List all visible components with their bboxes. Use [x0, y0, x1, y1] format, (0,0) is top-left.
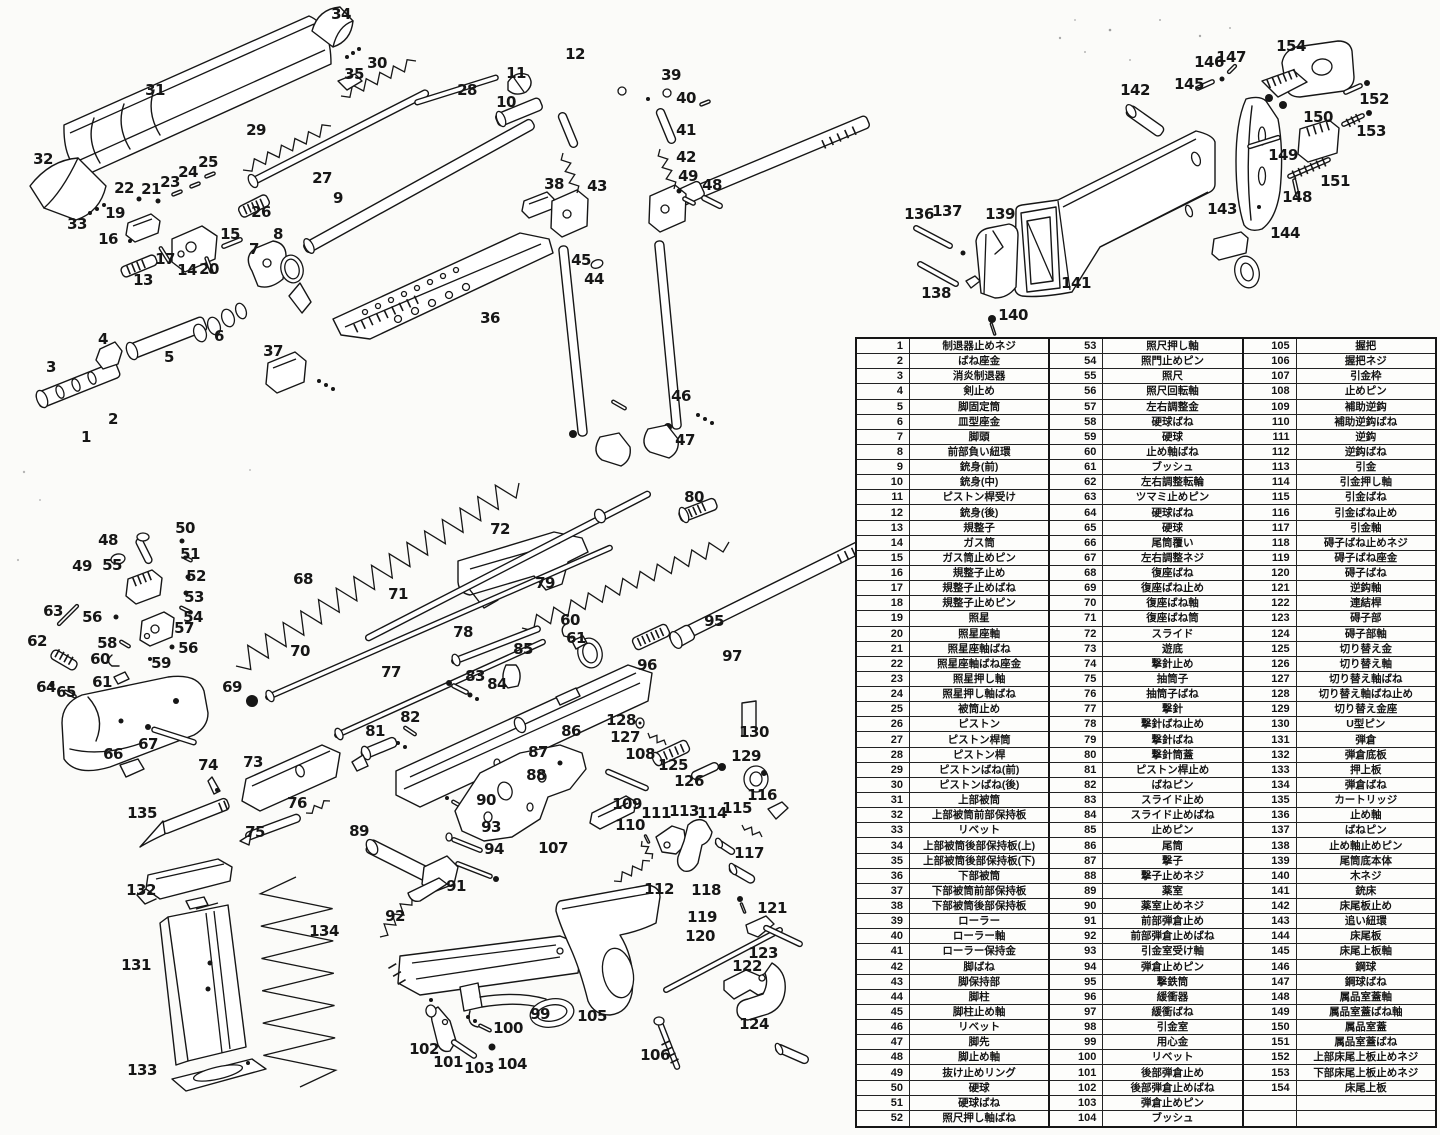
table-row: 149属品室蓋ばね軸	[1244, 1005, 1435, 1020]
part-number-cell: 6	[857, 415, 910, 429]
table-row: 45脚柱止め軸	[857, 1005, 1048, 1020]
part-name-cell: 後部弾倉止め	[1103, 1067, 1241, 1079]
table-row: 88撃子止めネジ	[1050, 869, 1241, 884]
part-name-cell: ピストンばね(前)	[910, 764, 1048, 776]
part-number-cell: 90	[1050, 899, 1103, 913]
part-number-cell: 9	[857, 460, 910, 474]
part-name-cell: 止め軸	[1297, 809, 1435, 821]
part-name-cell: 碍子ばね止めネジ	[1297, 537, 1435, 549]
part-number-label: 127	[610, 728, 640, 746]
part-number-cell: 117	[1244, 521, 1297, 535]
part-number-label: 72	[490, 520, 510, 538]
table-row: 126切り替え軸	[1244, 657, 1435, 672]
part-number-label: 106	[640, 1046, 670, 1064]
part-name-cell: ばね座金	[910, 355, 1048, 367]
table-row: 138止め軸止めピン	[1244, 838, 1435, 853]
table-row: 35上部被筒後部保持板(下)	[857, 854, 1048, 869]
table-row: 102後部弾倉止めばね	[1050, 1081, 1241, 1096]
part-number-cell: 99	[1050, 1035, 1103, 1049]
part-number-label: 19	[105, 204, 125, 222]
part-name-cell: 規整子止めばね	[910, 582, 1048, 594]
part-number-label: 108	[625, 745, 655, 763]
table-row: 9銃身(前)	[857, 460, 1048, 475]
table-row: 80撃針筒蓋	[1050, 748, 1241, 763]
part-number-label: 46	[671, 387, 691, 405]
part-name-cell: 上部被筒後部保持板(上)	[910, 840, 1048, 852]
part-number-label: 10	[496, 93, 516, 111]
part-number-label: 132	[126, 881, 156, 899]
part-number-cell: 98	[1050, 1020, 1103, 1034]
part-name-cell: 銃身(前)	[910, 461, 1048, 473]
part-number-label: 147	[1216, 48, 1246, 66]
table-row: 62左右調整転輪	[1050, 475, 1241, 490]
parts-table: 1制退器止めネジ2ばね座金3消炎制退器4剣止め5脚固定筒6皿型座金7脚頭8前部負…	[855, 337, 1437, 1128]
part-number-label: 133	[127, 1061, 157, 1079]
part-number-label: 20	[199, 260, 219, 278]
part-number-label: 23	[160, 173, 180, 191]
part-number-label: 152	[1359, 90, 1389, 108]
part-number-cell: 83	[1050, 793, 1103, 807]
part-name-cell: 弾倉底板	[1297, 749, 1435, 761]
part-number-cell: 16	[857, 566, 910, 580]
part-number-cell: 49	[857, 1065, 910, 1079]
part-number-label: 154	[1276, 37, 1306, 55]
part-number-cell: 109	[1244, 400, 1297, 414]
table-row: 85止めピン	[1050, 823, 1241, 838]
part-name-cell: 皿型座金	[910, 416, 1048, 428]
table-row: 5脚固定筒	[857, 400, 1048, 415]
part-number-cell: 56	[1050, 384, 1103, 398]
table-row: 74撃針止め	[1050, 657, 1241, 672]
part-name-cell: 弾倉ばね	[1297, 779, 1435, 791]
table-row: 33リベット	[857, 823, 1048, 838]
part-number-label: 36	[480, 309, 500, 327]
part-number-label: 142	[1120, 81, 1150, 99]
part-number-label: 59	[151, 654, 171, 672]
part-name-cell: 復座ばね	[1103, 567, 1241, 579]
table-row: 127切り替え軸ばね	[1244, 672, 1435, 687]
part-number-label: 130	[739, 723, 769, 741]
part-number-label: 9	[333, 189, 343, 207]
table-row: 91前部弾倉止め	[1050, 914, 1241, 929]
part-name-cell: 薬室	[1103, 885, 1241, 897]
part-number-cell: 91	[1050, 914, 1103, 928]
part-name-cell: 緩衝ばね	[1103, 1006, 1241, 1018]
part-number-cell: 119	[1244, 551, 1297, 565]
part-number-cell: 27	[857, 732, 910, 746]
part-number-cell: 141	[1244, 884, 1297, 898]
part-number-label: 14	[177, 261, 197, 279]
part-name-cell: 属品室蓋ばね軸	[1297, 1006, 1435, 1018]
part-name-cell: 握把	[1297, 340, 1435, 352]
part-name-cell: 抜け止めリング	[910, 1067, 1048, 1079]
table-row: 38下部被筒後部保持板	[857, 899, 1048, 914]
table-row: 141銃床	[1244, 884, 1435, 899]
part-number-label: 48	[702, 176, 722, 194]
part-number-label: 45	[571, 251, 591, 269]
table-row: 15ガス筒止めピン	[857, 551, 1048, 566]
part-number-label: 49	[72, 557, 92, 575]
table-row: 150属品室蓋	[1244, 1020, 1435, 1035]
part-number-cell: 122	[1244, 596, 1297, 610]
part-name-cell: 碍子ばね	[1297, 567, 1435, 579]
part-name-cell: 引金押し軸	[1297, 476, 1435, 488]
part-name-cell: 照尺押し軸ばね	[910, 1112, 1048, 1124]
part-number-cell: 121	[1244, 581, 1297, 595]
part-name-cell: 切り替え金	[1297, 643, 1435, 655]
part-name-cell: 止め軸ばね	[1103, 446, 1241, 458]
part-number-cell: 154	[1244, 1081, 1297, 1095]
part-number-label: 30	[367, 54, 387, 72]
table-row: 39ローラー	[857, 914, 1048, 929]
part-number-cell: 143	[1244, 914, 1297, 928]
table-row: 30ピストンばね(後)	[857, 778, 1048, 793]
part-number-label: 129	[731, 747, 761, 765]
part-name-cell: 銃身(中)	[910, 476, 1048, 488]
part-name-cell: 硬球	[1103, 522, 1241, 534]
part-number-cell: 111	[1244, 430, 1297, 444]
table-row: 92前部弾倉止めばね	[1050, 929, 1241, 944]
part-number-label: 33	[67, 215, 87, 233]
part-number-cell: 138	[1244, 838, 1297, 852]
table-row: 152上部床尾上板止めネジ	[1244, 1050, 1435, 1065]
part-number-cell: 31	[857, 793, 910, 807]
part-number-cell: 10	[857, 475, 910, 489]
part-number-cell: 92	[1050, 929, 1103, 943]
table-row: 121逆鈎軸	[1244, 581, 1435, 596]
part-name-cell: 引金	[1297, 461, 1435, 473]
part-number-label: 81	[365, 722, 385, 740]
part-number-label: 68	[293, 570, 313, 588]
table-row: 47脚先	[857, 1035, 1048, 1050]
part-name-cell: 属品室蓋軸	[1297, 991, 1435, 1003]
part-name-cell: 弾倉止めピン	[1103, 961, 1241, 973]
part-number-label: 7	[249, 240, 259, 258]
part-name-cell: 尾筒	[1103, 840, 1241, 852]
part-number-cell: 137	[1244, 823, 1297, 837]
part-name-cell: 弾倉止めピン	[1103, 1097, 1241, 1109]
part-name-cell: 属品室蓋	[1297, 1021, 1435, 1033]
part-number-cell: 127	[1244, 672, 1297, 686]
table-row: 124碍子部軸	[1244, 627, 1435, 642]
part-name-cell: 被筒止め	[910, 703, 1048, 715]
part-number-label: 76	[287, 794, 307, 812]
table-row: 142床尾板止め	[1244, 899, 1435, 914]
part-number-cell: 32	[857, 808, 910, 822]
part-number-label: 117	[734, 844, 764, 862]
part-number-cell: 74	[1050, 657, 1103, 671]
table-row: 115引金ばね	[1244, 490, 1435, 505]
table-row: 79撃針ばね	[1050, 732, 1241, 747]
part-number-label: 52	[186, 567, 206, 585]
part-number-label: 140	[998, 306, 1028, 324]
part-name-cell: ブッシュ	[1103, 461, 1241, 473]
part-name-cell: ピストン桿受け	[910, 491, 1048, 503]
part-number-cell: 149	[1244, 1005, 1297, 1019]
part-number-label: 85	[513, 640, 533, 658]
table-row: 65硬球	[1050, 521, 1241, 536]
part-number-cell: 68	[1050, 566, 1103, 580]
part-number-cell: 8	[857, 445, 910, 459]
part-number-label: 90	[476, 791, 496, 809]
table-row: 8前部負い紐環	[857, 445, 1048, 460]
table-row: 99用心金	[1050, 1035, 1241, 1050]
part-number-label: 137	[932, 202, 962, 220]
part-name-cell: 追い紐環	[1297, 915, 1435, 927]
part-number-label: 93	[481, 818, 501, 836]
part-name-cell: 補助逆鈎ばね	[1297, 416, 1435, 428]
part-name-cell: 規整子止めピン	[910, 597, 1048, 609]
part-number-label: 27	[312, 169, 332, 187]
part-number-cell: 142	[1244, 899, 1297, 913]
part-name-cell: 下部被筒	[910, 870, 1048, 882]
part-number-cell: 14	[857, 536, 910, 550]
table-row: 108止めピン	[1244, 384, 1435, 399]
part-number-label: 107	[538, 839, 568, 857]
part-name-cell: ピストン桿	[910, 749, 1048, 761]
part-number-cell: 75	[1050, 672, 1103, 686]
part-number-label: 126	[674, 772, 704, 790]
part-name-cell: リベット	[1103, 1051, 1241, 1063]
part-number-cell: 97	[1050, 1005, 1103, 1019]
table-row: 37下部被筒前部保持板	[857, 884, 1048, 899]
part-number-label: 39	[661, 66, 681, 84]
part-number-cell: 35	[857, 854, 910, 868]
part-name-cell: 後部弾倉止めばね	[1103, 1082, 1241, 1094]
table-row: 57左右調整金	[1050, 400, 1241, 415]
part-number-label: 119	[687, 908, 717, 926]
part-number-cell: 128	[1244, 687, 1297, 701]
table-row: 123碍子部	[1244, 611, 1435, 626]
part-name-cell: 碍子部軸	[1297, 628, 1435, 640]
part-number-cell: 135	[1244, 793, 1297, 807]
table-row: 132弾倉底板	[1244, 748, 1435, 763]
part-name-cell: 碍子部	[1297, 612, 1435, 624]
table-row: 128切り替え軸ばね止め	[1244, 687, 1435, 702]
part-number-label: 80	[684, 488, 704, 506]
table-row: 113引金	[1244, 460, 1435, 475]
part-number-cell: 21	[857, 642, 910, 656]
part-number-cell: 28	[857, 748, 910, 762]
table-row: 58硬球ばね	[1050, 415, 1241, 430]
part-number-cell: 42	[857, 960, 910, 974]
part-number-label: 111	[641, 804, 671, 822]
part-name-cell: 規整子止め	[910, 567, 1048, 579]
part-number-cell: 7	[857, 430, 910, 444]
table-row: 153下部床尾上板止めネジ	[1244, 1065, 1435, 1080]
part-name-cell: 下部被筒後部保持板	[910, 900, 1048, 912]
table-row: 2ばね座金	[857, 354, 1048, 369]
table-row: 131弾倉	[1244, 732, 1435, 747]
part-number-cell: 129	[1244, 702, 1297, 716]
part-number-cell: 24	[857, 687, 910, 701]
part-name-cell: ピストン桿止め	[1103, 764, 1241, 776]
part-number-cell: 11	[857, 490, 910, 504]
table-row: 10銃身(中)	[857, 475, 1048, 490]
part-number-label: 37	[263, 342, 283, 360]
table-row: 26ピストン	[857, 717, 1048, 732]
table-row: 148属品室蓋軸	[1244, 990, 1435, 1005]
part-number-cell: 64	[1050, 505, 1103, 519]
part-name-cell: 照星押し軸ばね	[910, 688, 1048, 700]
part-number-label: 12	[565, 45, 585, 63]
part-name-cell: 脚柱	[910, 991, 1048, 1003]
part-number-cell: 52	[857, 1111, 910, 1126]
parts-table-column: 105握把106握把ネジ107引金枠108止めピン109補助逆鈎110補助逆鈎ば…	[1244, 339, 1435, 1126]
part-number-label: 3	[46, 358, 56, 376]
table-row: 118碍子ばね止めネジ	[1244, 536, 1435, 551]
part-number-cell: 150	[1244, 1020, 1297, 1034]
table-row: 77撃針	[1050, 702, 1241, 717]
table-row: 36下部被筒	[857, 869, 1048, 884]
part-name-cell: 照門止めピン	[1103, 355, 1241, 367]
part-number-cell: 101	[1050, 1065, 1103, 1079]
part-number-cell: 118	[1244, 536, 1297, 550]
table-row: 112逆鈎ばね	[1244, 445, 1435, 460]
table-row: 3消炎制退器	[857, 369, 1048, 384]
part-number-cell: 41	[857, 944, 910, 958]
table-row: 7脚頭	[857, 430, 1048, 445]
part-name-cell: 引金ばね止め	[1297, 507, 1435, 519]
part-number-label: 51	[180, 545, 200, 563]
part-number-cell: 152	[1244, 1050, 1297, 1064]
table-row: 76抽筒子ばね	[1050, 687, 1241, 702]
part-number-cell	[1244, 1096, 1297, 1110]
part-number-cell: 39	[857, 914, 910, 928]
table-row: 16規整子止め	[857, 566, 1048, 581]
part-name-cell: 銃床	[1297, 885, 1435, 897]
part-number-label: 62	[27, 632, 47, 650]
table-row: 40ローラー軸	[857, 929, 1048, 944]
part-number-cell: 23	[857, 672, 910, 686]
part-number-cell: 15	[857, 551, 910, 565]
part-number-cell: 71	[1050, 611, 1103, 625]
part-number-cell: 136	[1244, 808, 1297, 822]
part-number-label: 136	[904, 205, 934, 223]
table-row: 20照星座軸	[857, 627, 1048, 642]
part-number-cell: 80	[1050, 748, 1103, 762]
table-row: 48脚止め軸	[857, 1050, 1048, 1065]
part-name-cell: 逆鈎ばね	[1297, 446, 1435, 458]
part-number-cell: 95	[1050, 975, 1103, 989]
part-number-label: 49	[678, 167, 698, 185]
part-name-cell: 撃針	[1103, 703, 1241, 715]
part-number-label: 26	[251, 203, 271, 221]
part-name-cell: 復座ばね止め	[1103, 582, 1241, 594]
part-number-cell: 112	[1244, 445, 1297, 459]
part-name-cell: 引金軸	[1297, 522, 1435, 534]
part-number-label: 31	[145, 81, 165, 99]
table-row: 103弾倉止めピン	[1050, 1096, 1241, 1111]
part-name-cell: 撃針筒蓋	[1103, 749, 1241, 761]
part-number-label: 141	[1061, 274, 1091, 292]
table-row: 31上部被筒	[857, 793, 1048, 808]
part-number-label: 43	[587, 177, 607, 195]
part-name-cell: 上部被筒前部保持板	[910, 809, 1048, 821]
table-row: 93引金室受け軸	[1050, 944, 1241, 959]
part-number-cell: 123	[1244, 611, 1297, 625]
part-number-cell: 148	[1244, 990, 1297, 1004]
part-number-label: 44	[584, 270, 604, 288]
part-name-cell: 硬球ばね	[1103, 416, 1241, 428]
table-row: 60止め軸ばね	[1050, 445, 1241, 460]
part-number-label: 87	[528, 743, 548, 761]
part-name-cell: 切り替え軸	[1297, 658, 1435, 670]
part-number-cell: 55	[1050, 369, 1103, 383]
part-number-cell: 62	[1050, 475, 1103, 489]
part-number-label: 13	[133, 271, 153, 289]
part-name-cell: 脚ばね	[910, 961, 1048, 973]
table-row: 46リベット	[857, 1020, 1048, 1035]
table-row: 50硬球	[857, 1081, 1048, 1096]
table-row: 56照尺回転軸	[1050, 384, 1241, 399]
table-row: 11ピストン桿受け	[857, 490, 1048, 505]
part-number-cell: 114	[1244, 475, 1297, 489]
part-number-label: 67	[138, 735, 158, 753]
table-row: 70復座ばね軸	[1050, 596, 1241, 611]
part-name-cell: 照星押し軸	[910, 673, 1048, 685]
part-name-cell: 脚止め軸	[910, 1051, 1048, 1063]
table-row: 41ローラー保持金	[857, 944, 1048, 959]
table-row: 59硬球	[1050, 430, 1241, 445]
part-number-cell: 140	[1244, 869, 1297, 883]
part-name-cell: 照星座軸ばね	[910, 643, 1048, 655]
part-name-cell: 復座ばね筒	[1103, 612, 1241, 624]
table-row: 23照星押し軸	[857, 672, 1048, 687]
part-name-cell: 逆鈎軸	[1297, 582, 1435, 594]
table-row: 119碍子ばね座金	[1244, 551, 1435, 566]
part-number-label: 89	[349, 822, 369, 840]
table-row: 22照星座軸ばね座金	[857, 657, 1048, 672]
part-number-cell: 151	[1244, 1035, 1297, 1049]
table-row: 86尾筒	[1050, 838, 1241, 853]
part-name-cell: 鋼球ばね	[1297, 976, 1435, 988]
part-name-cell: 脚保持部	[910, 976, 1048, 988]
part-number-cell: 19	[857, 611, 910, 625]
part-number-label: 148	[1282, 188, 1312, 206]
part-name-cell: 上部床尾上板止めネジ	[1297, 1051, 1435, 1063]
part-number-cell: 57	[1050, 400, 1103, 414]
part-number-label: 60	[90, 650, 110, 668]
part-name-cell: 床尾板止め	[1297, 900, 1435, 912]
part-name-cell: 切り替え軸ばね	[1297, 673, 1435, 685]
part-name-cell: 剣止め	[910, 385, 1048, 397]
part-number-label: 61	[566, 629, 586, 647]
part-number-label: 105	[577, 1007, 607, 1025]
table-row: 114引金押し軸	[1244, 475, 1435, 490]
table-row: 67左右調整ネジ	[1050, 551, 1241, 566]
part-number-label: 103	[464, 1059, 494, 1077]
part-name-cell: 床尾上板軸	[1297, 945, 1435, 957]
table-row: 71復座ばね筒	[1050, 611, 1241, 626]
part-number-label: 38	[544, 175, 564, 193]
part-number-cell: 12	[857, 505, 910, 519]
part-number-label: 135	[127, 804, 157, 822]
part-name-cell: ガス筒	[910, 537, 1048, 549]
part-name-cell: 脚頭	[910, 431, 1048, 443]
part-name-cell: 握把ネジ	[1297, 355, 1435, 367]
part-number-label: 55	[102, 556, 122, 574]
part-number-cell: 17	[857, 581, 910, 595]
part-name-cell: 規整子	[910, 522, 1048, 534]
table-row: 130U型ピン	[1244, 717, 1435, 732]
table-row: 89薬室	[1050, 884, 1241, 899]
table-row: 110補助逆鈎ばね	[1244, 415, 1435, 430]
part-number-label: 145	[1174, 75, 1204, 93]
table-row: 134弾倉ばね	[1244, 778, 1435, 793]
part-number-label: 69	[222, 678, 242, 696]
part-name-cell: 引金室	[1103, 1021, 1241, 1033]
